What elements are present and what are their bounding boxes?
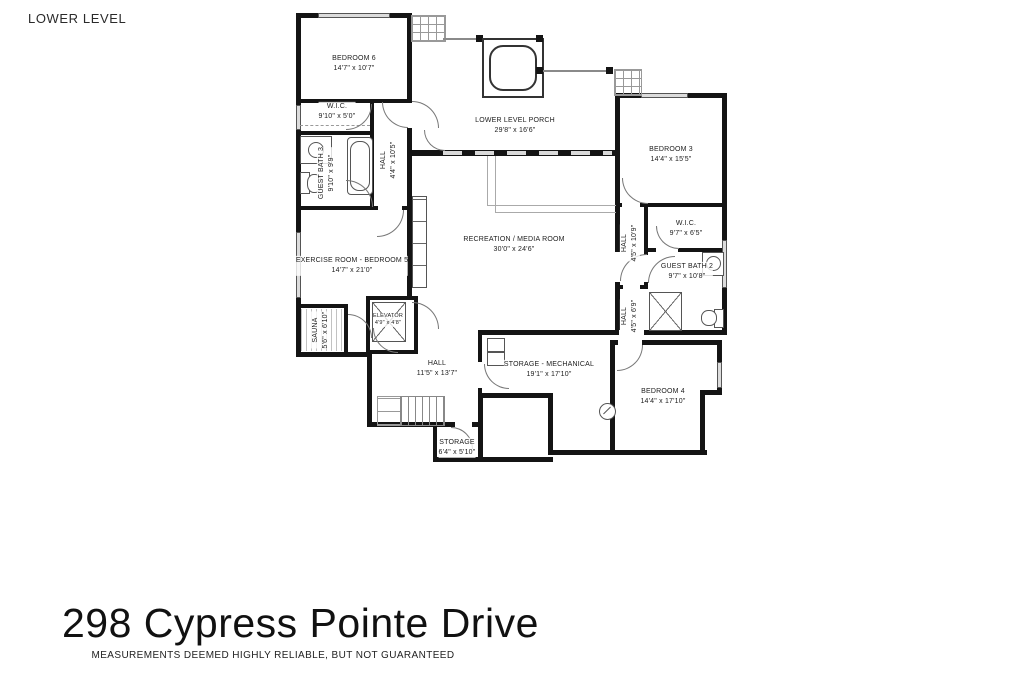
room-dims: 4'9" x 4'8" [373,320,403,327]
window [296,105,301,130]
room-name: SAUNA [311,312,321,349]
room-label-storage-mech: STORAGE - MECHANICAL 19'1" x 17'10" [504,360,594,380]
floor-plan: LOWER LEVEL [0,0,1024,683]
wall [700,390,705,455]
room-name: EXERCISE ROOM - BEDROOM 5 [296,256,408,266]
porch-post [536,67,543,74]
room-label-sauna: SAUNA 5'6" x 6'10" [311,312,331,349]
stairs [614,69,642,96]
wall [296,304,348,308]
room-label-hall1: HALL 4'4" x 10'5" [379,142,399,179]
door-arc [617,345,643,371]
room-label-bedroom6: BEDROOM 6 14'7" x 10'7" [332,54,376,74]
address-title: 298 Cypress Pointe Drive [62,600,484,647]
mechanical-unit [487,338,505,352]
wet-bar-counter [412,196,427,288]
stair-landing [377,396,402,426]
wall [296,131,374,135]
wall [640,203,727,207]
wall [548,393,553,455]
room-dims: 4'4" x 10'5" [389,142,399,179]
stairs [400,396,445,426]
door-arc [622,178,648,204]
room-label-bedroom4: BEDROOM 4 14'4" x 17'10" [640,387,685,407]
wall [367,352,372,427]
shower [649,292,682,331]
room-dims: 9'7" x 6'5" [670,229,703,239]
room-dims: 30'0" x 24'6" [463,245,564,255]
toilet-bowl [701,310,717,326]
wall [640,285,648,289]
door-arc [377,210,404,237]
room-dims: 14'7" x 21'0" [296,266,408,276]
room-dims: 11'5" x 13'7" [417,369,457,379]
room-dims: 14'4" x 15'5" [649,155,693,165]
room-dims: 9'10" x 5'0" [319,112,356,122]
room-label-wic1: W.I.C. 9'10" x 5'0" [319,102,356,122]
room-label-guest-bath2: GUEST BATH 2 9'7" x 10'8" [661,262,713,282]
room-dims: 9'10" x 9'9" [327,147,337,199]
hot-tub-basin [489,45,537,91]
room-name: BEDROOM 6 [332,54,376,64]
wall [478,330,482,362]
room-name: BEDROOM 3 [649,145,693,155]
wall [548,450,707,455]
room-name: GUEST BATH 3 [317,147,327,199]
window [717,362,722,388]
room-name: STORAGE [439,438,476,448]
room-label-hall4: HALL 11'5" x 13'7" [417,359,457,379]
room-name: STORAGE - MECHANICAL [504,360,594,370]
room-name: RECREATION / MEDIA ROOM [463,235,564,245]
room-name: HALL [379,142,389,179]
room-name: HALL [620,300,630,333]
title-block: 298 Cypress Pointe Drive MEASUREMENTS DE… [62,600,484,661]
room-dims: 6'4" x 5'10" [439,448,476,458]
wall [644,248,656,252]
door-arc [382,102,408,128]
room-label-hall2: HALL 4'5" x 10'9" [620,225,640,262]
wall [615,203,622,207]
room-name: HALL [417,359,457,369]
room-name: W.I.C. [670,219,703,229]
room-name: GUEST BATH 2 [661,262,713,272]
room-dims: 4'5" x 10'9" [630,225,640,262]
room-dims: 5'6" x 6'10" [321,312,331,349]
electrical-panel-symbol [599,403,616,420]
porch-post [536,35,543,42]
room-name: ELEVATOR [373,313,403,320]
wall [433,422,437,462]
room-label-rec: RECREATION / MEDIA ROOM 30'0" x 24'6" [463,235,564,255]
room-label-elevator: ELEVATOR 4'9" x 4'8" [373,313,403,327]
room-label-guest-bath3: GUEST BATH 3 9'10" x 9'9" [317,147,337,199]
room-label-wic2: W.I.C. 9'7" x 6'5" [670,219,703,239]
room-label-porch: LOWER LEVEL PORCH 29'8" x 16'6" [475,116,555,136]
wall [722,93,727,335]
level-label: LOWER LEVEL [28,11,126,26]
room-dims: 4'5" x 6'9" [630,300,640,333]
door-arc [412,302,439,329]
window [430,151,612,155]
porch-post [606,67,613,74]
porch-edge [443,38,479,40]
room-name: HALL [620,225,630,262]
room-label-hall3: HALL 4'5" x 6'9" [620,300,640,333]
room-name: W.I.C. [319,102,356,112]
wall [478,393,483,462]
room-dims: 14'4" x 17'10" [640,397,685,407]
room-label-bedroom3: BEDROOM 3 14'4" x 15'5" [649,145,693,165]
room-dims: 14'7" x 10'7" [332,64,376,74]
window [641,93,688,98]
wall [478,457,553,462]
disclaimer-text: MEASUREMENTS DEEMED HIGHLY RELIABLE, BUT… [62,650,484,661]
wall [478,393,553,398]
soffit-line [495,156,616,213]
room-dims: 29'8" x 16'6" [475,126,555,136]
room-label-exercise: EXERCISE ROOM - BEDROOM 5 14'7" x 21'0" [296,256,408,276]
wall [296,352,372,357]
window [318,13,390,18]
room-dims: 9'7" x 10'8" [661,272,713,282]
wall [615,285,623,289]
room-dims: 19'1" x 17'10" [504,370,594,380]
room-label-storage: STORAGE 6'4" x 5'10" [439,438,476,458]
door-arc [412,101,439,128]
door-arc [424,130,445,151]
stairs [411,15,446,42]
wall [478,330,619,335]
room-name: LOWER LEVEL PORCH [475,116,555,126]
room-name: BEDROOM 4 [640,387,685,397]
wall [610,340,615,455]
wall [642,340,722,345]
porch-edge [543,70,609,72]
